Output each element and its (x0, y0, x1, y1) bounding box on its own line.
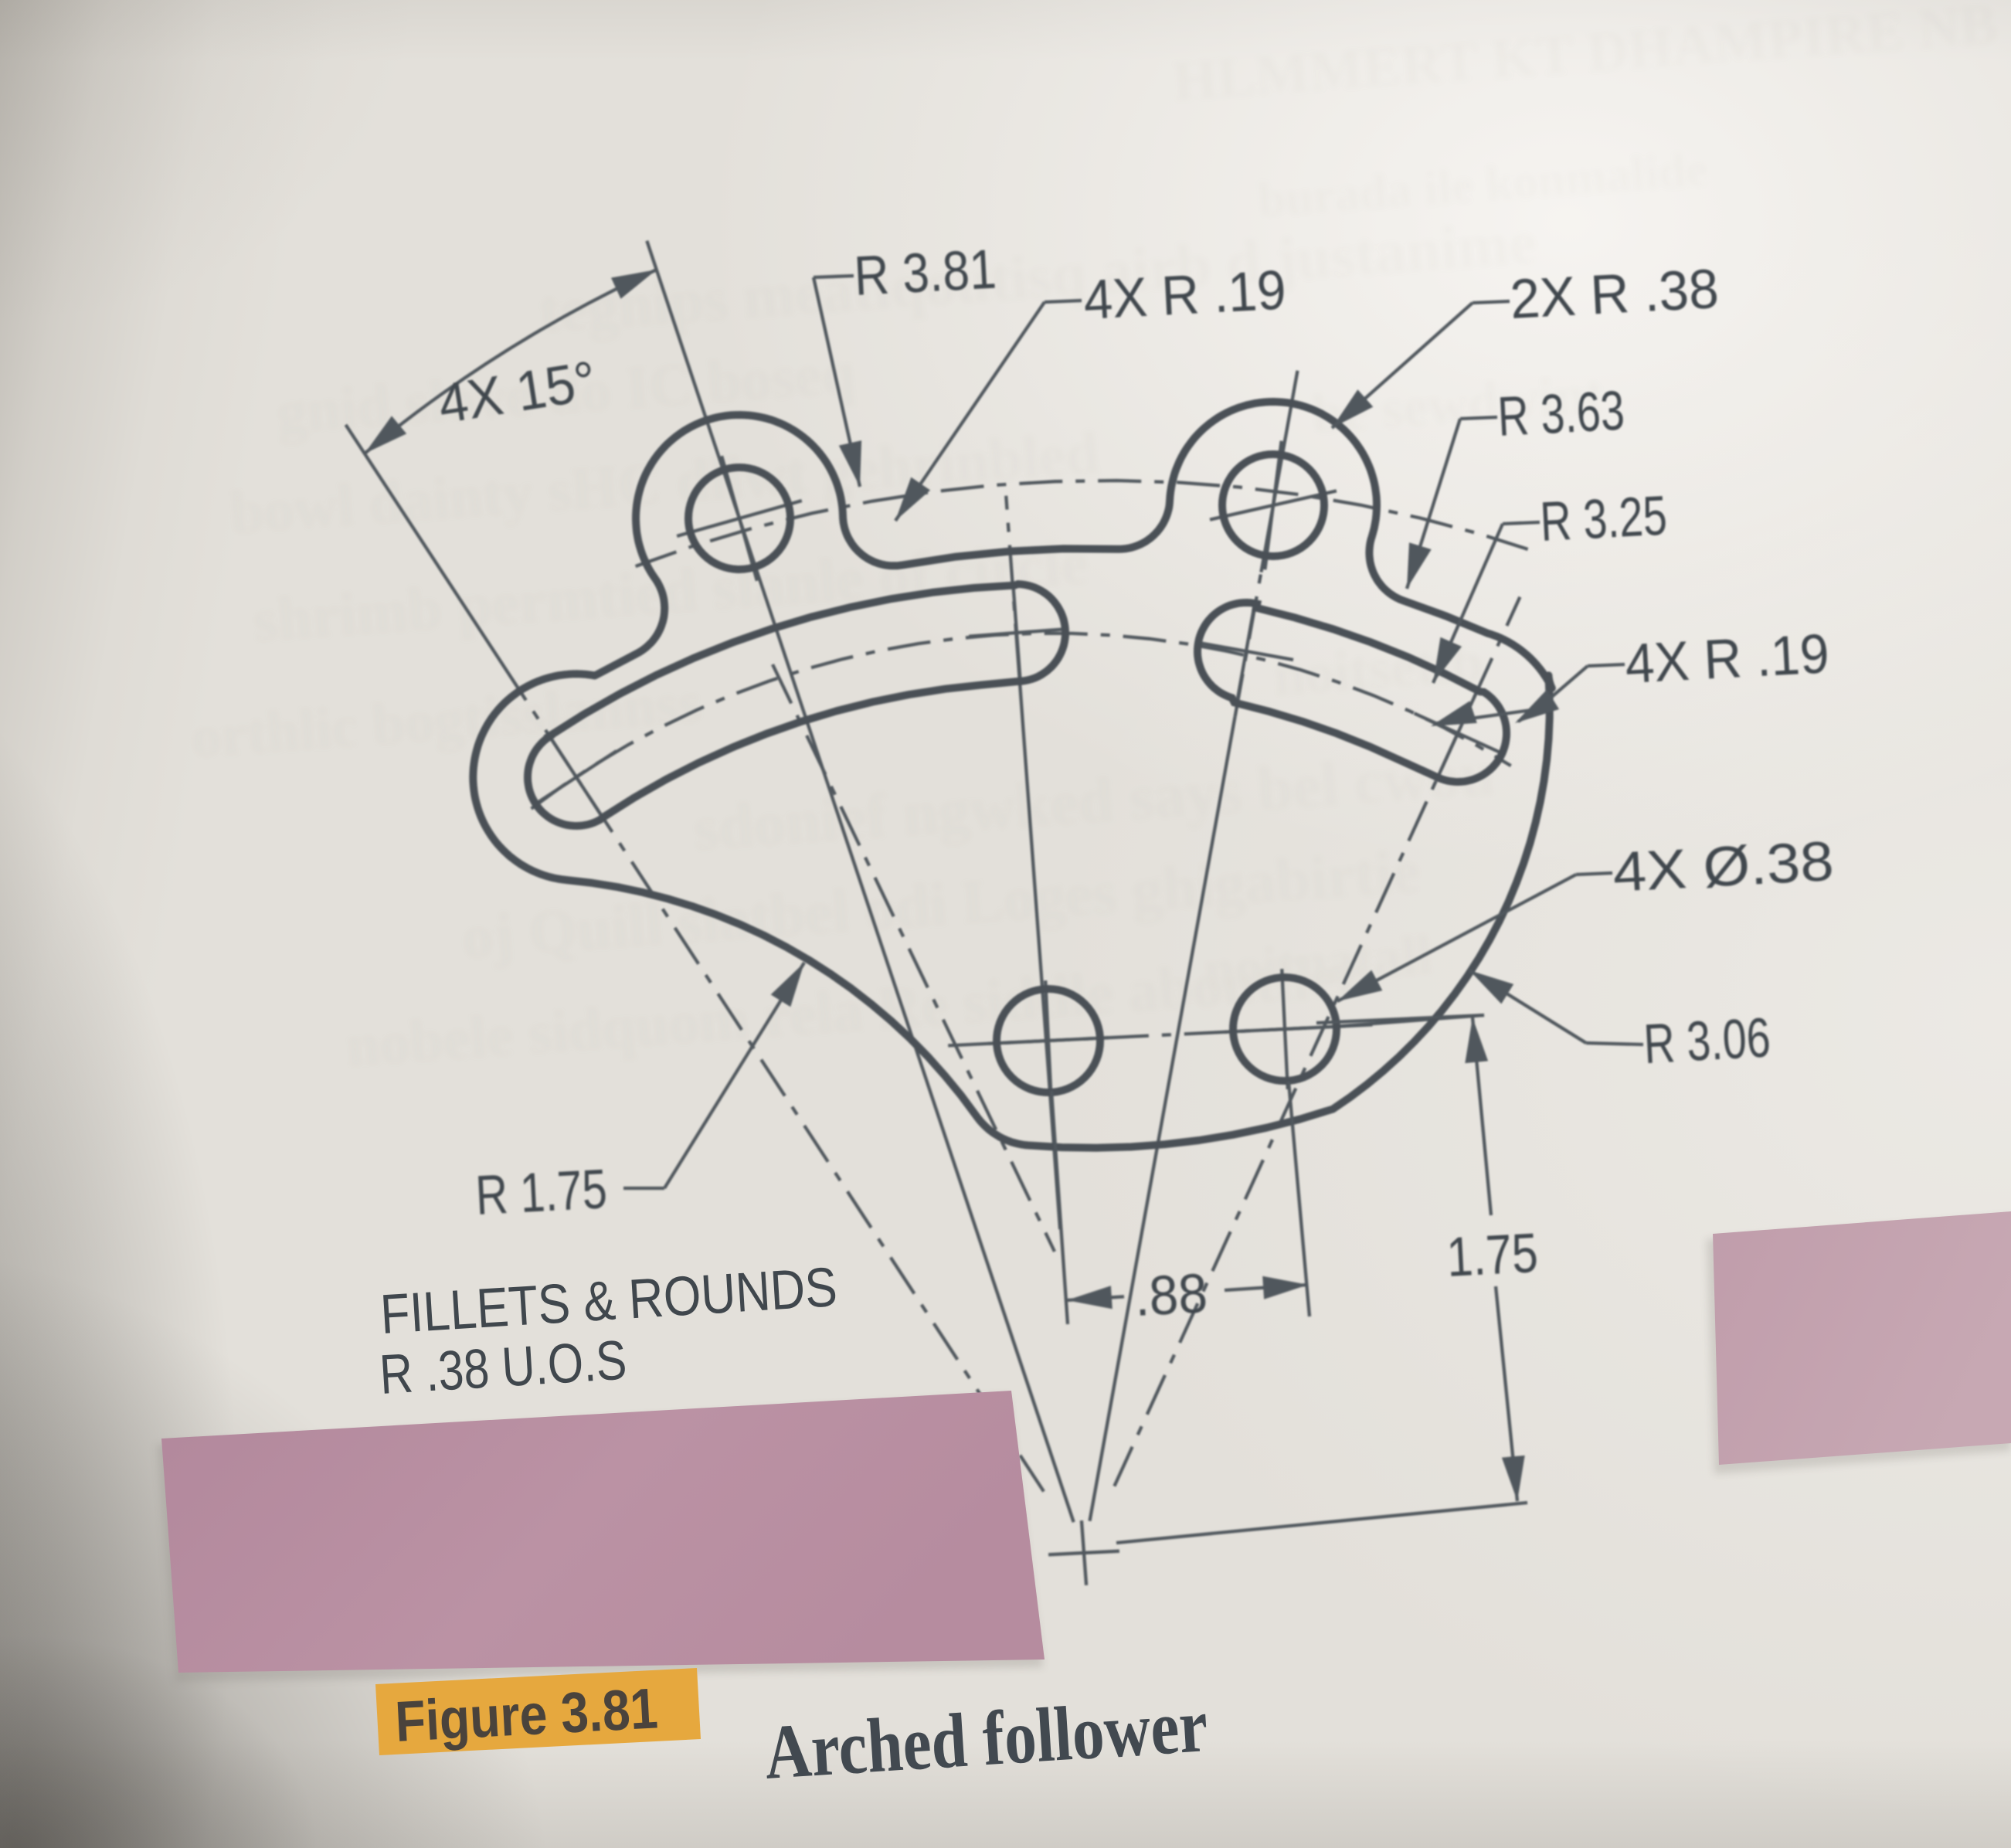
svg-text:Arched follower: Arched follower (762, 1682, 1210, 1795)
svg-text:Figure 3.81: Figure 3.81 (393, 1676, 659, 1754)
